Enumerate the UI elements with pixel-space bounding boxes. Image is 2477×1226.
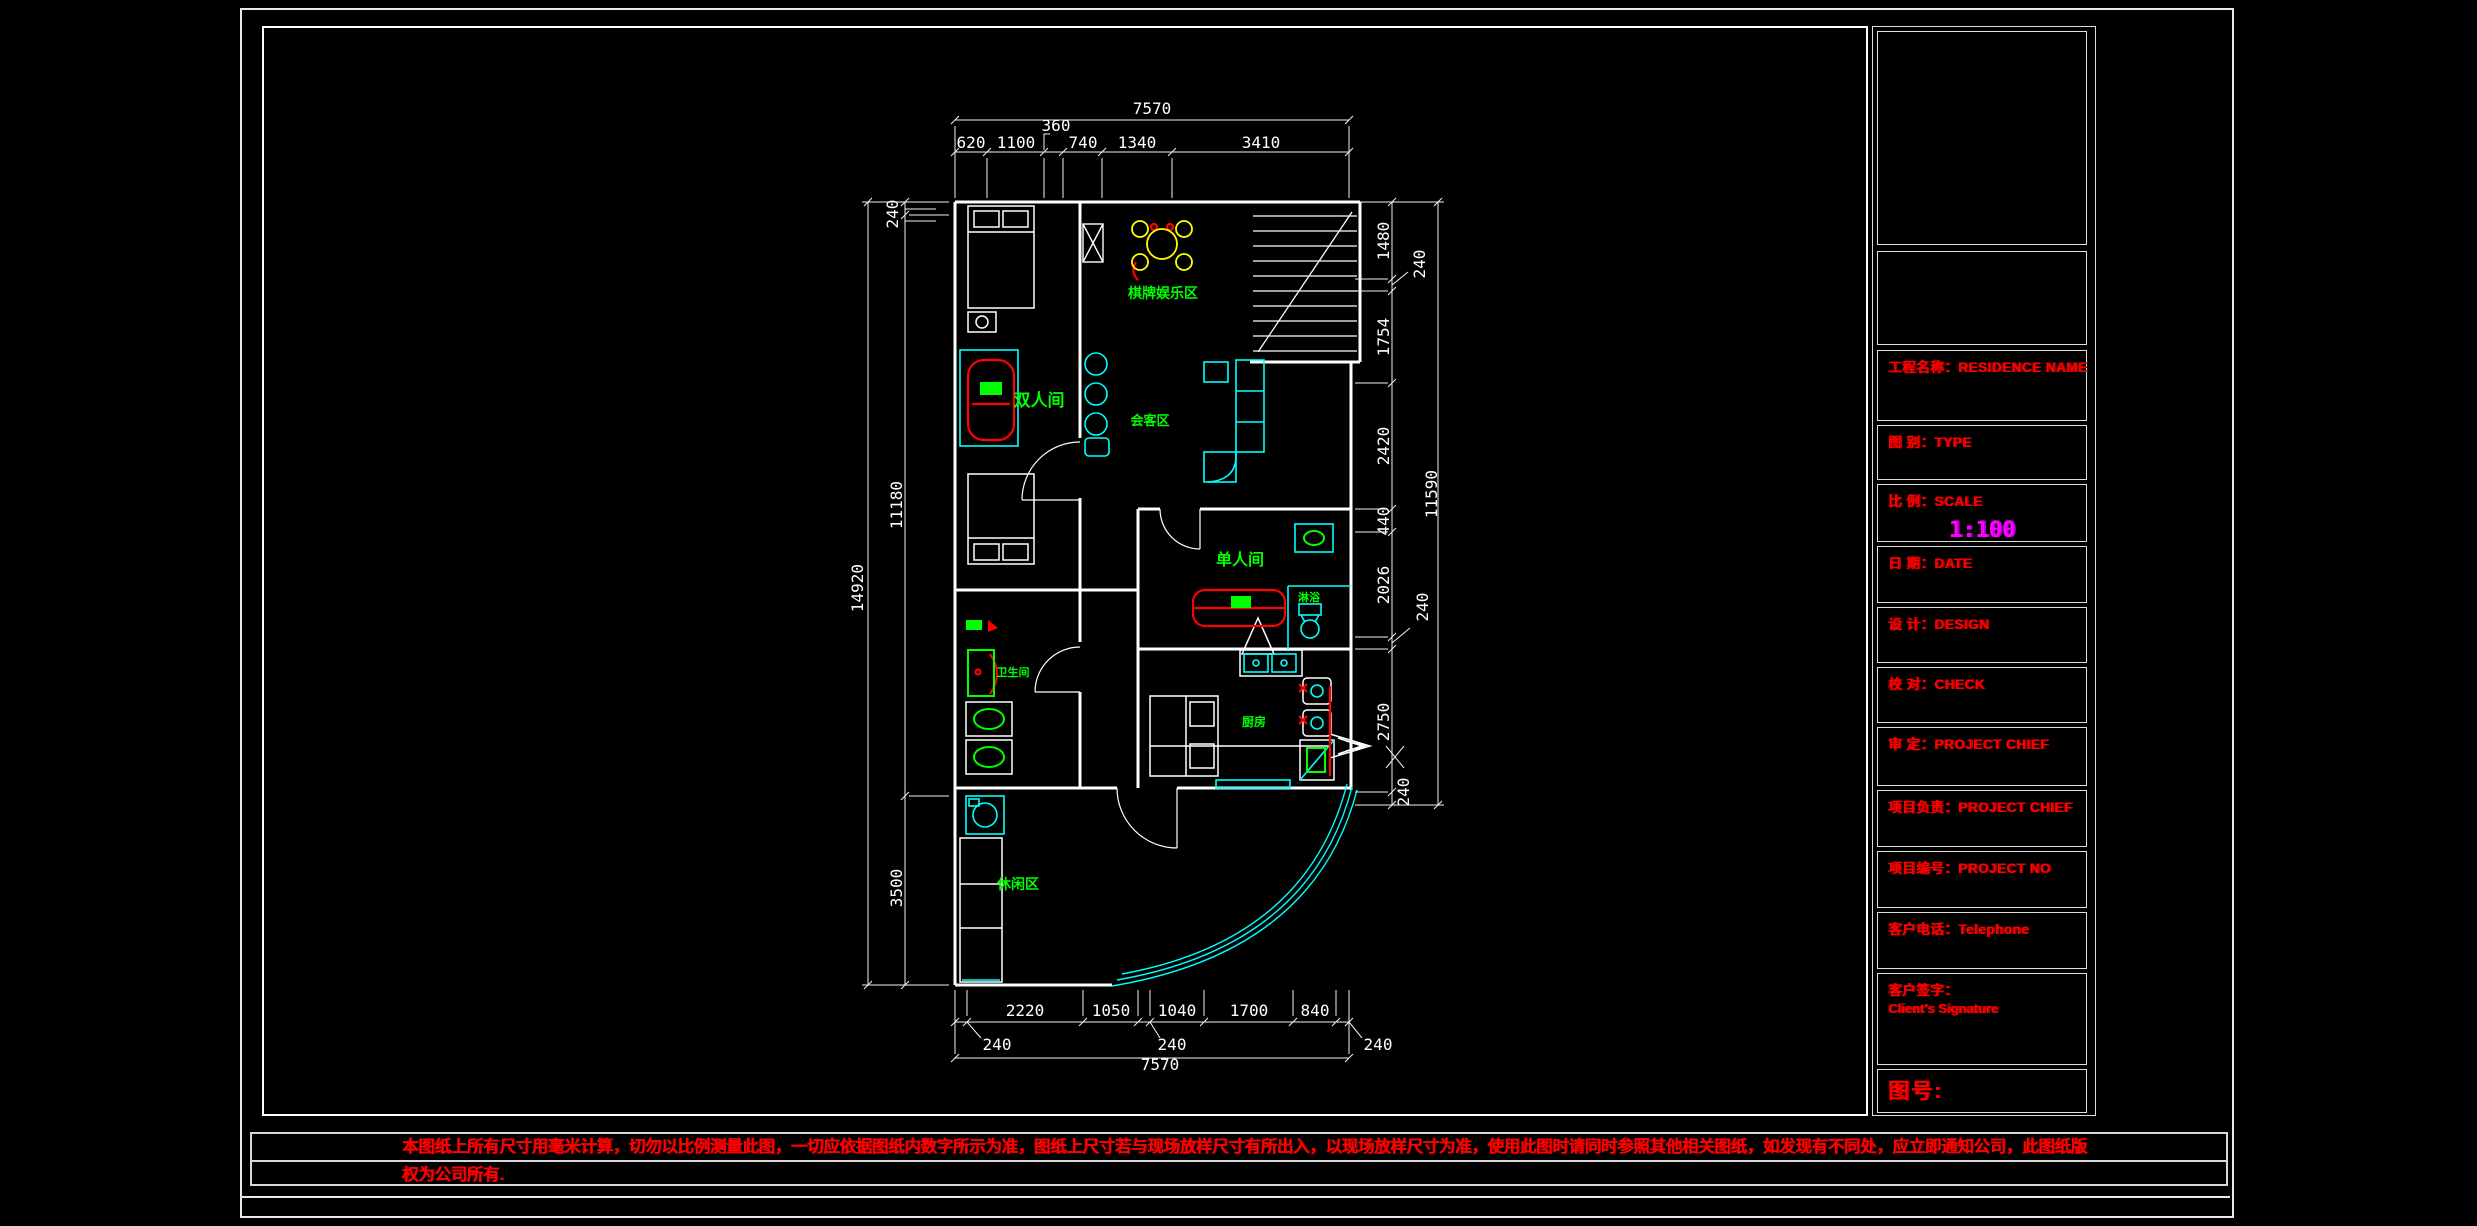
- title-block-cell-project-name: 工程名称：RESIDENCE NAME: [1877, 350, 2087, 421]
- washer-icon: [966, 796, 1004, 834]
- title-block: 工程名称：RESIDENCE NAME 图 别：TYPE 比 例：SCALE 1…: [1872, 26, 2096, 1116]
- dim-top-total: 7570: [1133, 99, 1172, 118]
- drawing-no-label: 图号:: [1878, 1070, 2086, 1105]
- design-label: 设 计：DESIGN: [1878, 608, 2086, 633]
- dim-top-1: 1100: [997, 133, 1036, 152]
- dim-left-1: 11180: [887, 481, 906, 529]
- dim-bottom-2: 1050: [1092, 1001, 1131, 1020]
- title-block-cell-date: 日 期：DATE: [1877, 546, 2087, 603]
- label-reception: 会客区: [1130, 413, 1169, 429]
- approve-label: 审 定：PROJECT CHIEF: [1878, 728, 2086, 753]
- column-x-icon: [1083, 224, 1103, 262]
- sofa-icon: [1204, 360, 1264, 482]
- dimension-lines: [862, 116, 1444, 1062]
- dim-bottom-total: 7570: [1141, 1055, 1180, 1074]
- dim-right-0: 1480: [1374, 222, 1393, 261]
- chief-label: 项目负责：PROJECT CHIEF: [1878, 791, 2086, 816]
- bed2-icon: [968, 474, 1034, 564]
- dim-top-4: 1340: [1118, 133, 1157, 152]
- title-block-cell-approve: 审 定：PROJECT CHIEF: [1877, 727, 2087, 786]
- vanity-icon: [1295, 524, 1333, 552]
- wardrobe-icon: [1150, 696, 1218, 776]
- title-block-cell-signature: 客户签字： Client's Signature: [1877, 973, 2087, 1065]
- disclaimer-line-2: 权为公司所有.: [252, 1162, 503, 1186]
- scale-value: 1:100: [1878, 518, 2086, 543]
- title-block-cell-drawing-no: 图号:: [1877, 1069, 2087, 1113]
- cad-viewport: 7570 620 1100 360 740 1340 3410 240 2220…: [0, 0, 2477, 1226]
- green-fixtures: [966, 382, 1325, 772]
- dim-bottom-4: 1040: [1158, 1001, 1197, 1020]
- label-games-area: 棋牌娱乐区: [1128, 285, 1198, 302]
- dim-right-7: 2750: [1374, 703, 1393, 742]
- dim-right-3: 2420: [1374, 427, 1393, 466]
- date-label: 日 期：DATE: [1878, 547, 2086, 572]
- curtain-wall-arc: [1112, 784, 1357, 986]
- dim-top-0: 620: [957, 133, 986, 152]
- title-block-cell-scale: 比 例：SCALE 1:100: [1877, 484, 2087, 542]
- dining-set-icon: [1132, 221, 1192, 270]
- dim-right-5: 2026: [1374, 566, 1393, 605]
- bed-icon: [968, 206, 1034, 308]
- title-block-cell-empty-1: [1877, 31, 2087, 245]
- dim-left-2: 3500: [887, 869, 906, 908]
- massage-bed-icon: [968, 360, 1014, 440]
- dim-right-2: 1754: [1374, 318, 1393, 357]
- disclaimer-row-1: 本图纸上所有尺寸用毫米计算，切勿以比例测量此图，一切应依据图纸内数字所示为准，图…: [250, 1132, 2228, 1160]
- dim-bottom-1: 2220: [1006, 1001, 1045, 1020]
- kitchen-sink-icons: [1244, 654, 1296, 672]
- dim-right-8: 240: [1394, 778, 1413, 807]
- telephone-label: 客户电话：Telephone: [1878, 913, 2086, 938]
- nightstand-icon: [968, 312, 996, 332]
- toilet-icon: [1299, 604, 1321, 638]
- disclaimer-line-1: 本图纸上所有尺寸用毫米计算，切勿以比例测量此图，一切应依据图纸内数字所示为准，图…: [252, 1134, 2087, 1160]
- label-double-room: 双人间: [1014, 390, 1065, 411]
- dim-left-0: 240: [883, 200, 902, 229]
- dim-top-2: 360: [1042, 116, 1071, 135]
- label-kitchen: 厨房: [1242, 714, 1266, 729]
- title-block-cell-telephone: 客户电话：Telephone: [1877, 912, 2087, 969]
- project-name-label: 工程名称：RESIDENCE NAME: [1878, 351, 2086, 376]
- dim-top-5: 3410: [1242, 133, 1281, 152]
- dim-right-total: 11590: [1422, 470, 1441, 518]
- type-label: 图 别：TYPE: [1878, 426, 2086, 451]
- title-block-cell-empty-2: [1877, 251, 2087, 345]
- dim-right-6: 240: [1413, 593, 1432, 622]
- title-block-cell-check: 校 对：CHECK: [1877, 667, 2087, 723]
- stairs-icon: [1253, 212, 1357, 352]
- disclaimer-row-2: 权为公司所有.: [250, 1160, 2228, 1186]
- floor-plan: 7570 620 1100 360 740 1340 3410 240 2220…: [0, 0, 2477, 1226]
- signature-label-cn: 客户签字：: [1878, 974, 2086, 999]
- title-block-cell-project-no: 项目编号：PROJECT NO: [1877, 851, 2087, 908]
- label-single-room: 单人间: [1216, 550, 1264, 569]
- sink-counter-icon: [966, 702, 1012, 774]
- label-bathroom: 卫生间: [997, 665, 1030, 679]
- dim-top-3: 740: [1069, 133, 1098, 152]
- dim-right-1: 240: [1410, 250, 1429, 279]
- signature-label-en: Client's Signature: [1878, 999, 2086, 1016]
- lounge-counter-icon: [960, 838, 1002, 982]
- dim-right-4: 440: [1374, 507, 1393, 536]
- stove-icon: [1303, 678, 1331, 736]
- dim-bottom-3: 240: [1158, 1035, 1187, 1054]
- label-lounge: 休闲区: [996, 876, 1039, 893]
- label-shower: 淋浴: [1298, 590, 1321, 604]
- title-block-cell-chief: 项目负责：PROJECT CHIEF: [1877, 790, 2087, 847]
- title-block-cell-design: 设 计：DESIGN: [1877, 607, 2087, 663]
- title-block-cell-type: 图 别：TYPE: [1877, 425, 2087, 480]
- dim-bottom-6: 840: [1301, 1001, 1330, 1020]
- disclaimer-strip: 本图纸上所有尺寸用毫米计算，切勿以比例测量此图，一切应依据图纸内数字所示为准，图…: [250, 1132, 2228, 1186]
- check-label: 校 对：CHECK: [1878, 668, 2086, 693]
- project-no-label: 项目编号：PROJECT NO: [1878, 852, 2086, 877]
- entry-axis-arrow-icon: [1150, 734, 1370, 758]
- dim-bottom-7: 240: [1364, 1035, 1393, 1054]
- scale-label: 比 例：SCALE: [1878, 485, 2086, 510]
- dim-left-total: 14920: [848, 564, 867, 612]
- dim-bottom-0: 240: [983, 1035, 1012, 1054]
- dim-bottom-5: 1700: [1230, 1001, 1269, 1020]
- stool-icons: [1085, 353, 1109, 456]
